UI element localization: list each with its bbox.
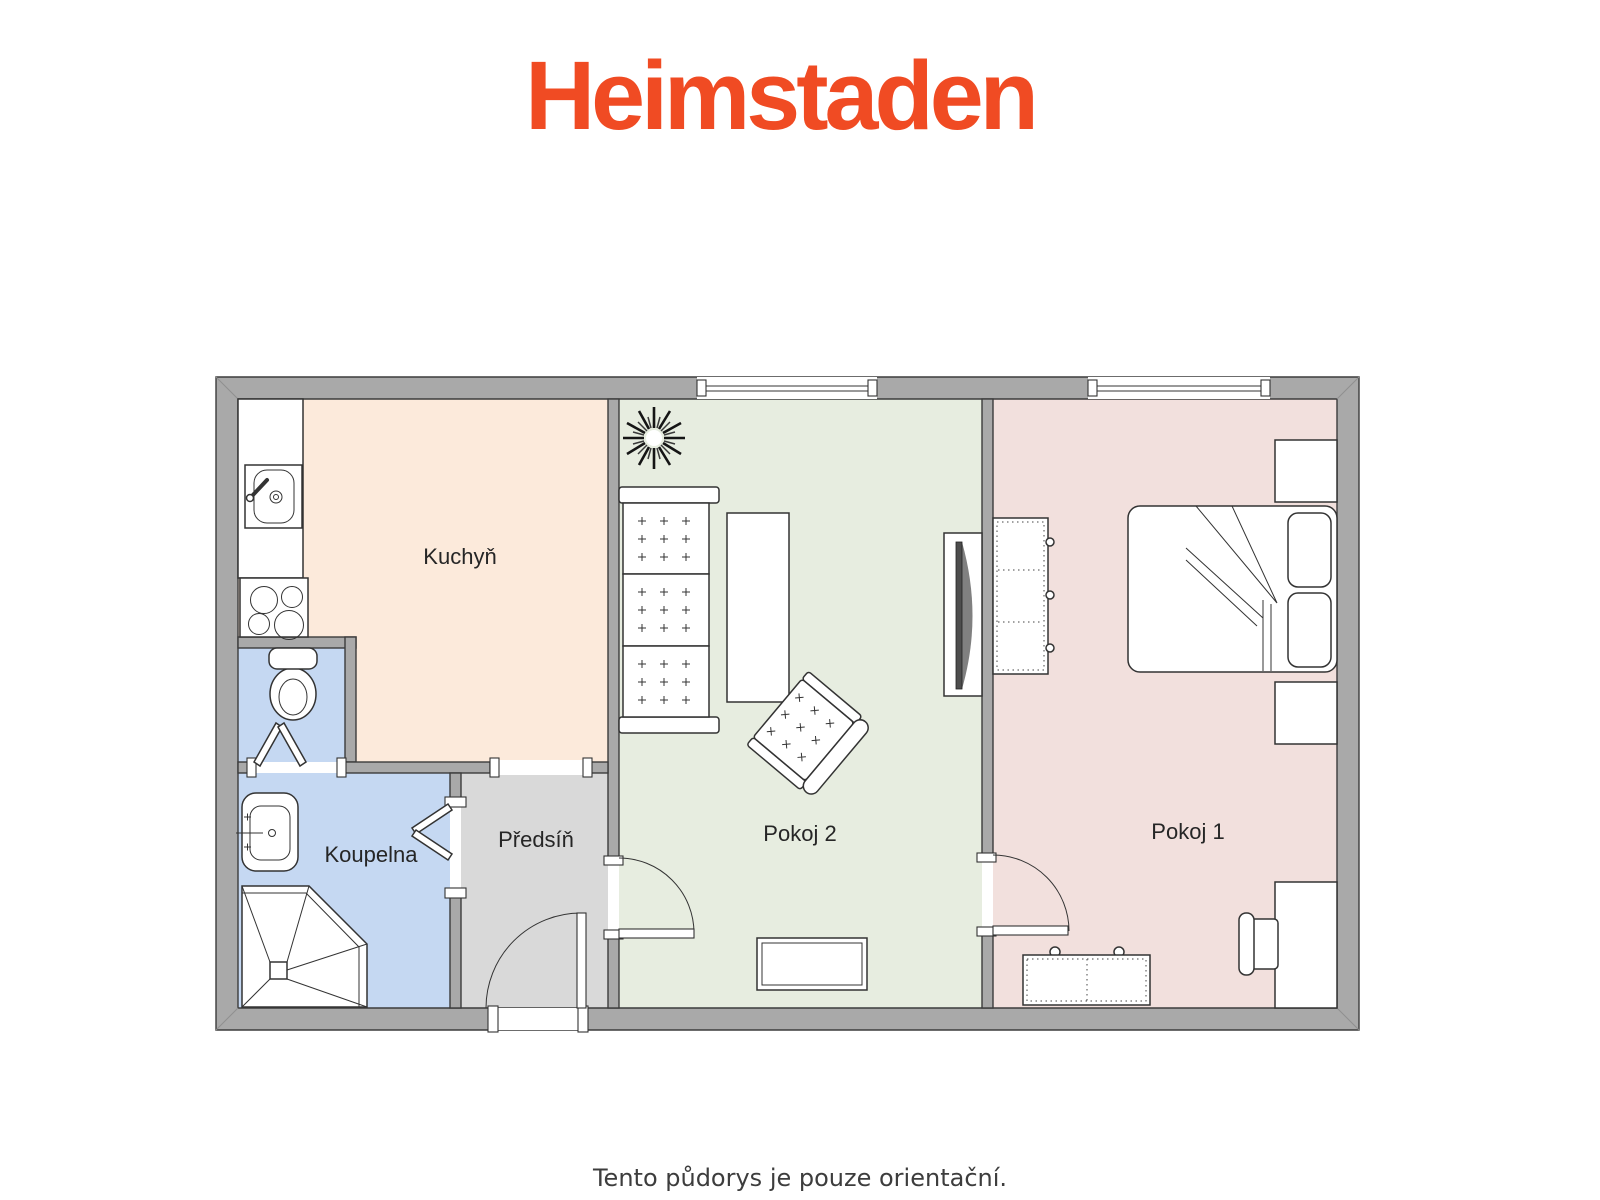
kuchyn-fixtures — [238, 399, 308, 640]
wall-wc-right — [345, 637, 356, 762]
wc-fixtures — [269, 648, 317, 720]
chair-icon — [1239, 913, 1278, 975]
wall-kitchen-pokoj2 — [608, 399, 619, 858]
tv-icon — [944, 533, 982, 696]
label-kuchyn: Kuchyň — [423, 544, 496, 569]
label-predsin: Předsíň — [498, 827, 574, 852]
wall-h1-right — [590, 762, 608, 773]
disclaimer-text: Tento půdorys je pouze orientační. — [0, 1164, 1600, 1192]
label-pokoj2: Pokoj 2 — [763, 821, 836, 846]
coffee-table-icon — [727, 513, 789, 702]
pillow-icon — [1288, 593, 1331, 667]
double-bed-icon — [1128, 506, 1337, 672]
toilet-icon — [269, 648, 317, 720]
nightstand-icon — [1275, 682, 1337, 744]
window-pokoj1 — [1088, 377, 1270, 399]
dresser-icon — [1023, 947, 1150, 1005]
pillow-icon — [1288, 513, 1331, 587]
desk-icon — [1275, 882, 1337, 1008]
nightstand-icon — [1275, 440, 1337, 502]
stove-icon — [240, 578, 308, 640]
wardrobe-icon — [993, 518, 1054, 674]
label-koupelna: Koupelna — [325, 842, 419, 867]
wall-pokoj2-pokoj1 — [982, 399, 993, 855]
wall-predsin-pokoj2 — [608, 938, 619, 1008]
floorplan: Kuchyň Koupelna Předsíň Pokoj 2 Pokoj 1 — [0, 0, 1600, 1200]
kitchen-sink-icon — [245, 465, 302, 528]
wall-koupelna-predsin-bottom — [450, 895, 461, 1008]
opening-kuchyn-predsin — [490, 758, 592, 777]
wall-h1-mid — [345, 762, 490, 773]
wall-wc-top — [238, 637, 356, 648]
window-pokoj2 — [697, 377, 877, 399]
washbasin-icon — [236, 793, 298, 871]
sideboard-icon — [757, 938, 867, 990]
sofa-icon — [619, 487, 719, 733]
wall-koupelna-predsin-top — [450, 773, 461, 800]
label-pokoj1: Pokoj 1 — [1151, 819, 1224, 844]
wall-pokoj2-pokoj1-lower — [982, 935, 993, 1008]
